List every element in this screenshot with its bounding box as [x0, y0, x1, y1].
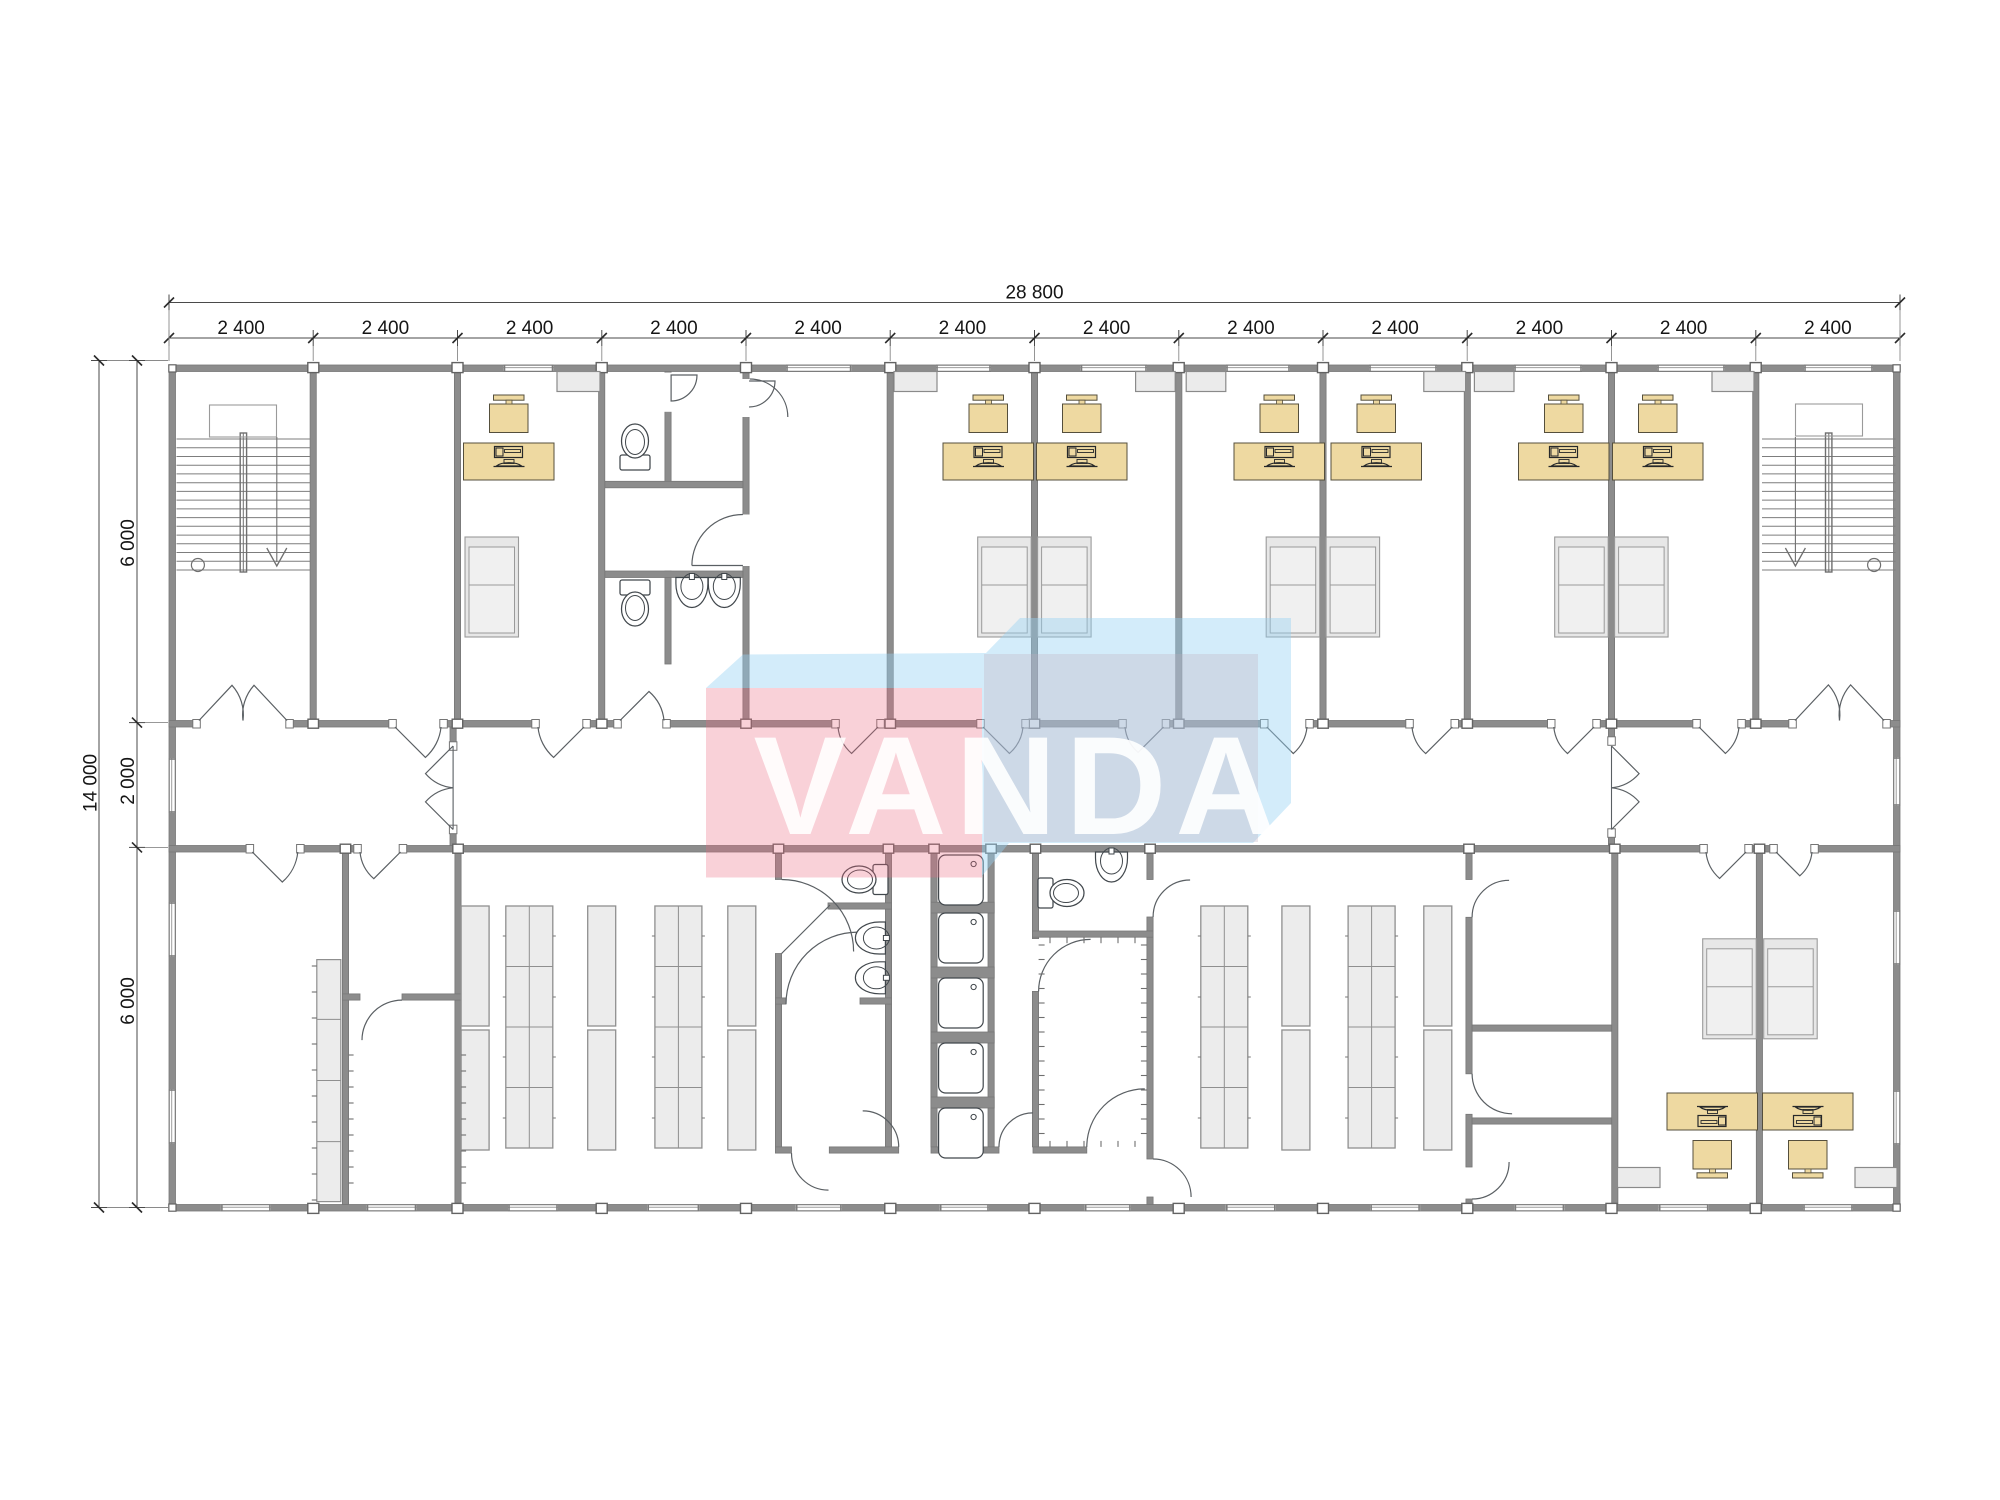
- svg-text:VANDA: VANDA: [754, 707, 1277, 864]
- svg-text:2 400: 2 400: [1804, 318, 1852, 339]
- svg-text:2 400: 2 400: [1371, 318, 1419, 339]
- svg-text:6 000: 6 000: [118, 519, 139, 567]
- svg-text:2 400: 2 400: [506, 318, 554, 339]
- svg-text:2 000: 2 000: [118, 757, 139, 805]
- svg-text:2 400: 2 400: [1516, 318, 1564, 339]
- svg-text:2 400: 2 400: [794, 318, 842, 339]
- svg-text:6 000: 6 000: [118, 977, 139, 1025]
- svg-text:2 400: 2 400: [217, 318, 265, 339]
- svg-text:28 800: 28 800: [1005, 283, 1063, 304]
- svg-text:14 000: 14 000: [81, 754, 102, 812]
- svg-text:2 400: 2 400: [939, 318, 987, 339]
- svg-text:2 400: 2 400: [362, 318, 410, 339]
- svg-text:2 400: 2 400: [650, 318, 698, 339]
- svg-text:2 400: 2 400: [1083, 318, 1131, 339]
- svg-text:2 400: 2 400: [1227, 318, 1275, 339]
- svg-text:2 400: 2 400: [1660, 318, 1708, 339]
